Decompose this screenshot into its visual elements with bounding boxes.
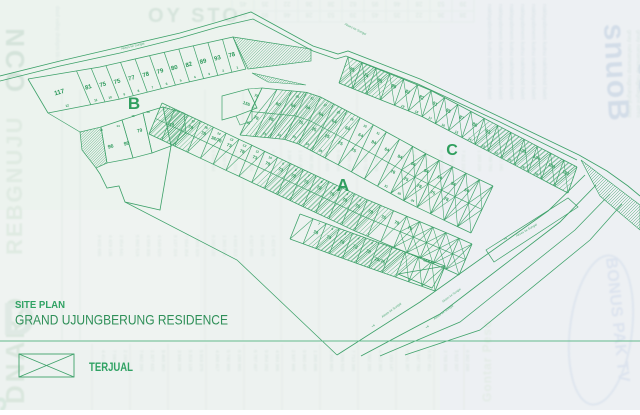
svg-text:OY STO: OY STO (148, 5, 241, 27)
svg-text:TERJUAL: TERJUAL (89, 360, 133, 374)
svg-text:naklayabmem kutnu nakhidesid h: naklayabmem kutnu nakhidesid halet (541, 4, 547, 100)
svg-text:45: 45 (239, 0, 246, 6)
svg-text:14: 14 (116, 124, 120, 128)
svg-text:4 589 306: 4 589 306 (145, 235, 151, 257)
svg-text:4 412 365: 4 412 365 (377, 350, 383, 372)
svg-text:22: 22 (283, 0, 290, 6)
svg-text:35: 35 (261, 0, 268, 6)
svg-text:4 429 136: 4 429 136 (107, 235, 113, 257)
svg-text:53: 53 (327, 11, 334, 17)
svg-text:7 982 990: 7 982 990 (346, 150, 352, 172)
svg-text:naklayabmem kutnu nakhidesid h: naklayabmem kutnu nakhidesid halet (497, 4, 503, 100)
svg-text:9 960 407: 9 960 407 (301, 350, 307, 372)
svg-text:OƆN: OƆN (0, 25, 30, 92)
svg-text:5 245 432: 5 245 432 (259, 235, 265, 257)
svg-text:5 892 519: 5 892 519 (134, 235, 140, 257)
svg-text:REBGNUJU: REBGNUJU (2, 116, 27, 255)
svg-text:naklayabmem kutnu nakhidesid h: naklayabmem kutnu nakhidesid halet (508, 4, 514, 100)
svg-text:39: 39 (349, 11, 356, 17)
svg-text:1 183 147: 1 183 147 (388, 350, 394, 372)
svg-text:gnay nahamurep nagnukgnil atre: gnay nahamurep nagnukgnil atres (626, 30, 632, 118)
svg-text:35: 35 (393, 11, 400, 17)
svg-text:46: 46 (393, 0, 400, 6)
svg-text:6 546 864: 6 546 864 (210, 150, 216, 172)
svg-text:7 554 354: 7 554 354 (183, 235, 189, 257)
svg-text:4 549 520: 4 549 520 (156, 235, 162, 257)
svg-text:Gontar Peso: Gontar Peso (480, 320, 494, 402)
svg-text:4 268 417: 4 268 417 (214, 350, 220, 372)
svg-text:naklayabmem kutnu nakhidesid h: naklayabmem kutnu nakhidesid halet (486, 4, 492, 100)
svg-text:1 327 632: 1 327 632 (149, 350, 155, 372)
svg-text:46: 46 (283, 11, 290, 17)
svg-text:38: 38 (327, 0, 334, 6)
svg-text:36: 36 (437, 11, 444, 17)
svg-text:45: 45 (371, 11, 378, 17)
svg-text:B: B (128, 94, 140, 113)
svg-text:3 946 208: 3 946 208 (176, 350, 182, 372)
svg-text:6 188 965: 6 188 965 (236, 350, 242, 372)
svg-text:2 392 852: 2 392 852 (308, 150, 314, 172)
svg-text:1 398 686: 1 398 686 (312, 350, 318, 372)
svg-text:4 638 313: 4 638 313 (232, 235, 238, 257)
svg-text:7 312 216: 7 312 216 (460, 150, 466, 172)
svg-text:4 584 386: 4 584 386 (274, 350, 280, 372)
svg-text:53: 53 (437, 0, 444, 6)
svg-text:8 817 451: 8 817 451 (426, 350, 432, 372)
svg-text:38: 38 (459, 11, 466, 17)
svg-text:28: 28 (415, 0, 422, 6)
svg-text:3: 3 (0, 396, 12, 410)
svg-text:3 397 570: 3 397 570 (286, 150, 292, 172)
svg-text:SITE PLAN: SITE PLAN (15, 300, 65, 311)
svg-text:18: 18 (146, 110, 150, 114)
svg-text:9 602 696: 9 602 696 (96, 235, 102, 257)
svg-text:naklayabmem kutnu nakhidesid h: naklayabmem kutnu nakhidesid halet (519, 4, 525, 100)
svg-text:7 713 395: 7 713 395 (350, 350, 356, 372)
svg-text:5 319 126: 5 319 126 (187, 350, 193, 372)
svg-text:22: 22 (415, 11, 422, 17)
svg-text:1 422 678: 1 422 678 (270, 235, 276, 257)
svg-text:2 937 986: 2 937 986 (290, 350, 296, 372)
svg-text:7 662 396: 7 662 396 (138, 350, 144, 372)
svg-text:naklayabmem kutnu nakhidesid h: naklayabmem kutnu nakhidesid halet (530, 4, 536, 100)
svg-text:39: 39 (459, 0, 466, 6)
svg-text:6 787 497: 6 787 497 (252, 350, 258, 372)
svg-text:62: 62 (349, 0, 356, 6)
svg-text:9 354 282: 9 354 282 (263, 350, 269, 372)
svg-text:15: 15 (131, 114, 135, 118)
svg-text:8 137 324: 8 137 324 (172, 235, 178, 257)
svg-text:9 647 763: 9 647 763 (415, 350, 421, 372)
svg-text:95: 95 (261, 11, 268, 17)
svg-text:4 527 990: 4 527 990 (248, 235, 254, 257)
svg-text:36: 36 (305, 0, 312, 6)
svg-text:2 522 307: 2 522 307 (453, 350, 459, 372)
svg-text:gnay nahamurep nagnukgnil atre: gnay nahamurep nagnukgnil atres (635, 30, 640, 118)
svg-text:8 382 288: 8 382 288 (464, 350, 470, 372)
svg-text:2 400 732: 2 400 732 (362, 150, 368, 172)
svg-text:5 919 378: 5 919 378 (198, 350, 204, 372)
svg-text:5 968 883: 5 968 883 (328, 350, 334, 372)
svg-text:3 789 300: 3 789 300 (442, 350, 448, 372)
svg-text:C: C (446, 142, 458, 159)
svg-text:8 292 132: 8 292 132 (210, 235, 216, 257)
svg-text:GRAND UJUNGBERUNG RESIDENCE: GRAND UJUNGBERUNG RESIDENCE (15, 313, 228, 328)
svg-text:dasd vallay dnebpm bb ru: dasd vallay dnebpm bb ru (54, 6, 60, 63)
svg-text:13: 13 (99, 128, 103, 132)
svg-text:1 163 156: 1 163 156 (476, 150, 482, 172)
svg-text:3 439 686: 3 439 686 (400, 150, 406, 172)
svg-text:9 468 383: 9 468 383 (160, 350, 166, 372)
svg-text:95: 95 (371, 0, 378, 6)
svg-text:28: 28 (305, 11, 312, 17)
svg-text:A: A (337, 175, 350, 195)
svg-text:5 742 988: 5 742 988 (225, 350, 231, 372)
svg-text:2 954 641: 2 954 641 (118, 235, 124, 257)
